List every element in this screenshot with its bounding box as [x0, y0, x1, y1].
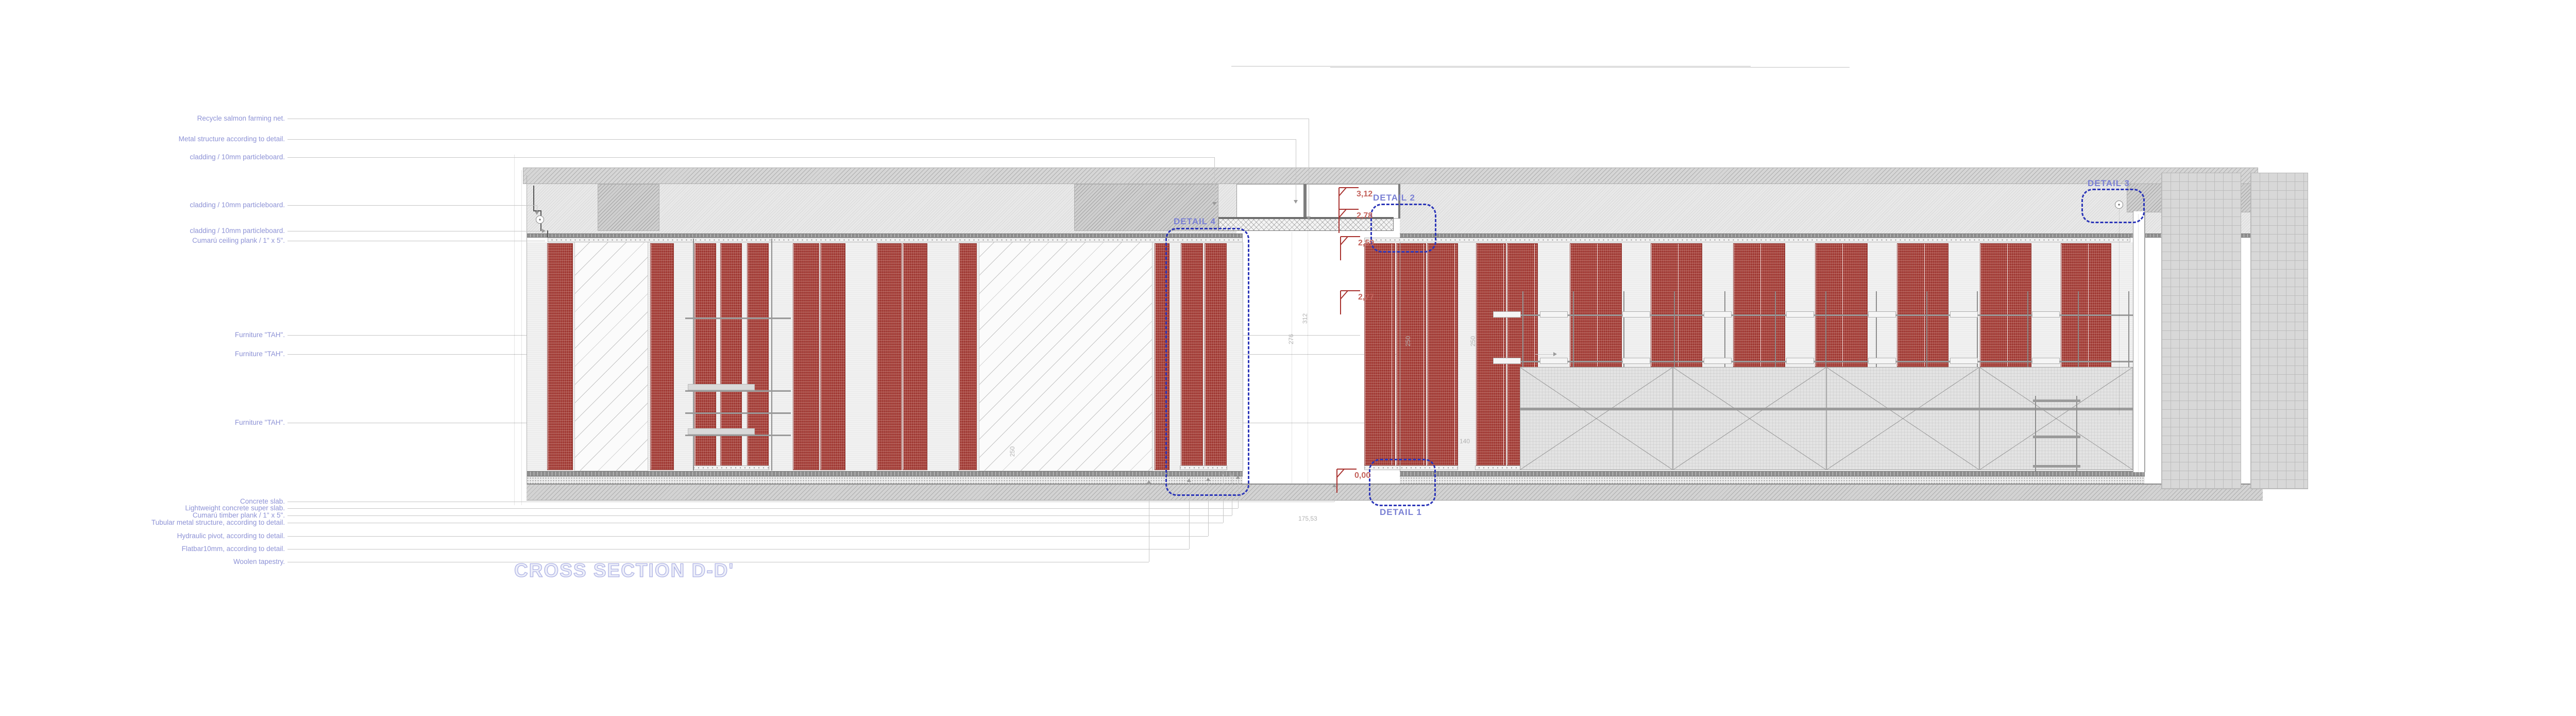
annotation-label: Recycle salmon farming net.	[7, 114, 285, 123]
annotation-label: Metal structure according to detail.	[7, 135, 285, 144]
annotation-label: Furniture "TAH".	[7, 349, 285, 359]
annotation-label: Tubular metal structure, according to de…	[7, 518, 285, 527]
annotation-label: cladding / 10mm particleboard.	[7, 153, 285, 162]
annotation-label: Hydraulic pivot, according to detail.	[7, 531, 285, 541]
annotation-label: cladding / 10mm particleboard.	[7, 226, 285, 236]
annotation-label: cladding / 10mm particleboard.	[7, 201, 285, 210]
annotation-label: Cumarú ceiling plank / 1" x 5".	[7, 236, 285, 245]
annotation-label: Woolen tapestry.	[7, 557, 285, 567]
label-layer: CROSS SECTION D-D' Recycle salmon farmin…	[0, 0, 2576, 716]
annotation-label: Furniture "TAH".	[7, 330, 285, 340]
annotation-label: Flatbar10mm, according to detail.	[7, 544, 285, 554]
annotation-label: Furniture "TAH".	[7, 418, 285, 427]
drawing-title: CROSS SECTION D-D'	[514, 560, 734, 581]
drawing-canvas: DETAIL 4DETAIL 2DETAIL 3DETAIL 13,122,78…	[0, 0, 2576, 716]
